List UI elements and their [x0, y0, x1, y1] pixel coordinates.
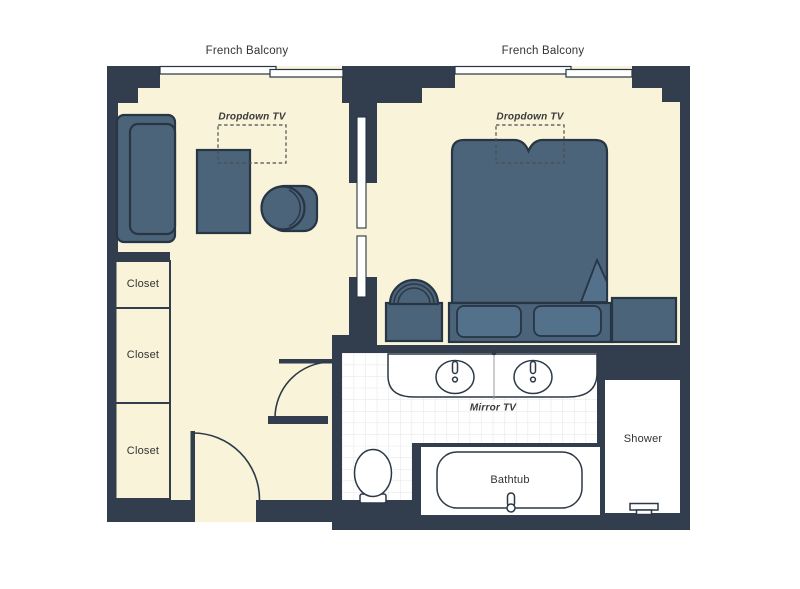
dropdown-tv-living-label: Dropdown TV	[218, 112, 285, 123]
corner-top-left-block	[107, 66, 160, 88]
bottom-wall-left	[107, 500, 195, 522]
corner-top-right-step	[662, 88, 690, 102]
bathtub-faucet-knob	[507, 504, 515, 512]
top-middle-pier	[342, 66, 455, 88]
sink-right-faucet	[531, 362, 536, 374]
dropdown-tv-bedroom-label: Dropdown TV	[496, 112, 563, 123]
table	[197, 150, 250, 233]
bench-cushion-left	[457, 306, 521, 337]
mirror-tv-label: Mirror TV	[470, 403, 516, 414]
closet-2-label: Closet	[127, 349, 159, 361]
french-balcony-living-label: French Balcony	[206, 45, 289, 57]
vanity-counter	[388, 354, 597, 397]
shower-drain	[630, 504, 658, 511]
bathtub-label: Bathtub	[490, 474, 529, 486]
closet-3-label: Closet	[127, 445, 159, 457]
sink-right-drain	[531, 377, 536, 382]
sliding-door-panel-bottom	[357, 236, 366, 297]
bottom-wall-middle	[256, 500, 345, 522]
french-balcony-bedroom-label: French Balcony	[502, 45, 585, 57]
corner-top-right-block	[632, 66, 690, 88]
bedroom-chair-base	[386, 303, 442, 341]
window-bedroom-left	[455, 67, 571, 75]
closets	[116, 261, 171, 499]
sofa-seat	[130, 124, 175, 234]
sliding-door-panel-top	[357, 117, 366, 228]
mirror-tv-marker-dot	[492, 351, 497, 356]
closet-1-label: Closet	[127, 278, 159, 290]
window-living-right	[270, 70, 343, 78]
shower-drain-lip	[637, 510, 652, 515]
top-middle-pier-step	[342, 88, 422, 103]
closet-top-bar	[118, 252, 170, 261]
window-living-left	[160, 67, 276, 75]
sink-left-faucet	[453, 362, 458, 374]
floor-plan-drawing	[0, 0, 800, 589]
corner-top-left-step	[107, 88, 138, 103]
floor-plan: French Balcony French Balcony Dropdown T…	[0, 0, 800, 589]
entry-door-leaf	[191, 431, 196, 501]
shower-label: Shower	[624, 433, 663, 445]
sink-left-drain	[453, 377, 458, 382]
armchair-seat	[262, 187, 305, 230]
toilet-bowl	[355, 450, 392, 497]
window-bedroom-right	[566, 70, 632, 78]
bench-cushion-right	[534, 306, 601, 336]
bed	[452, 140, 607, 303]
nightstand	[612, 298, 676, 342]
shower-floor	[605, 380, 680, 513]
bathroom-door-stub	[268, 416, 328, 424]
